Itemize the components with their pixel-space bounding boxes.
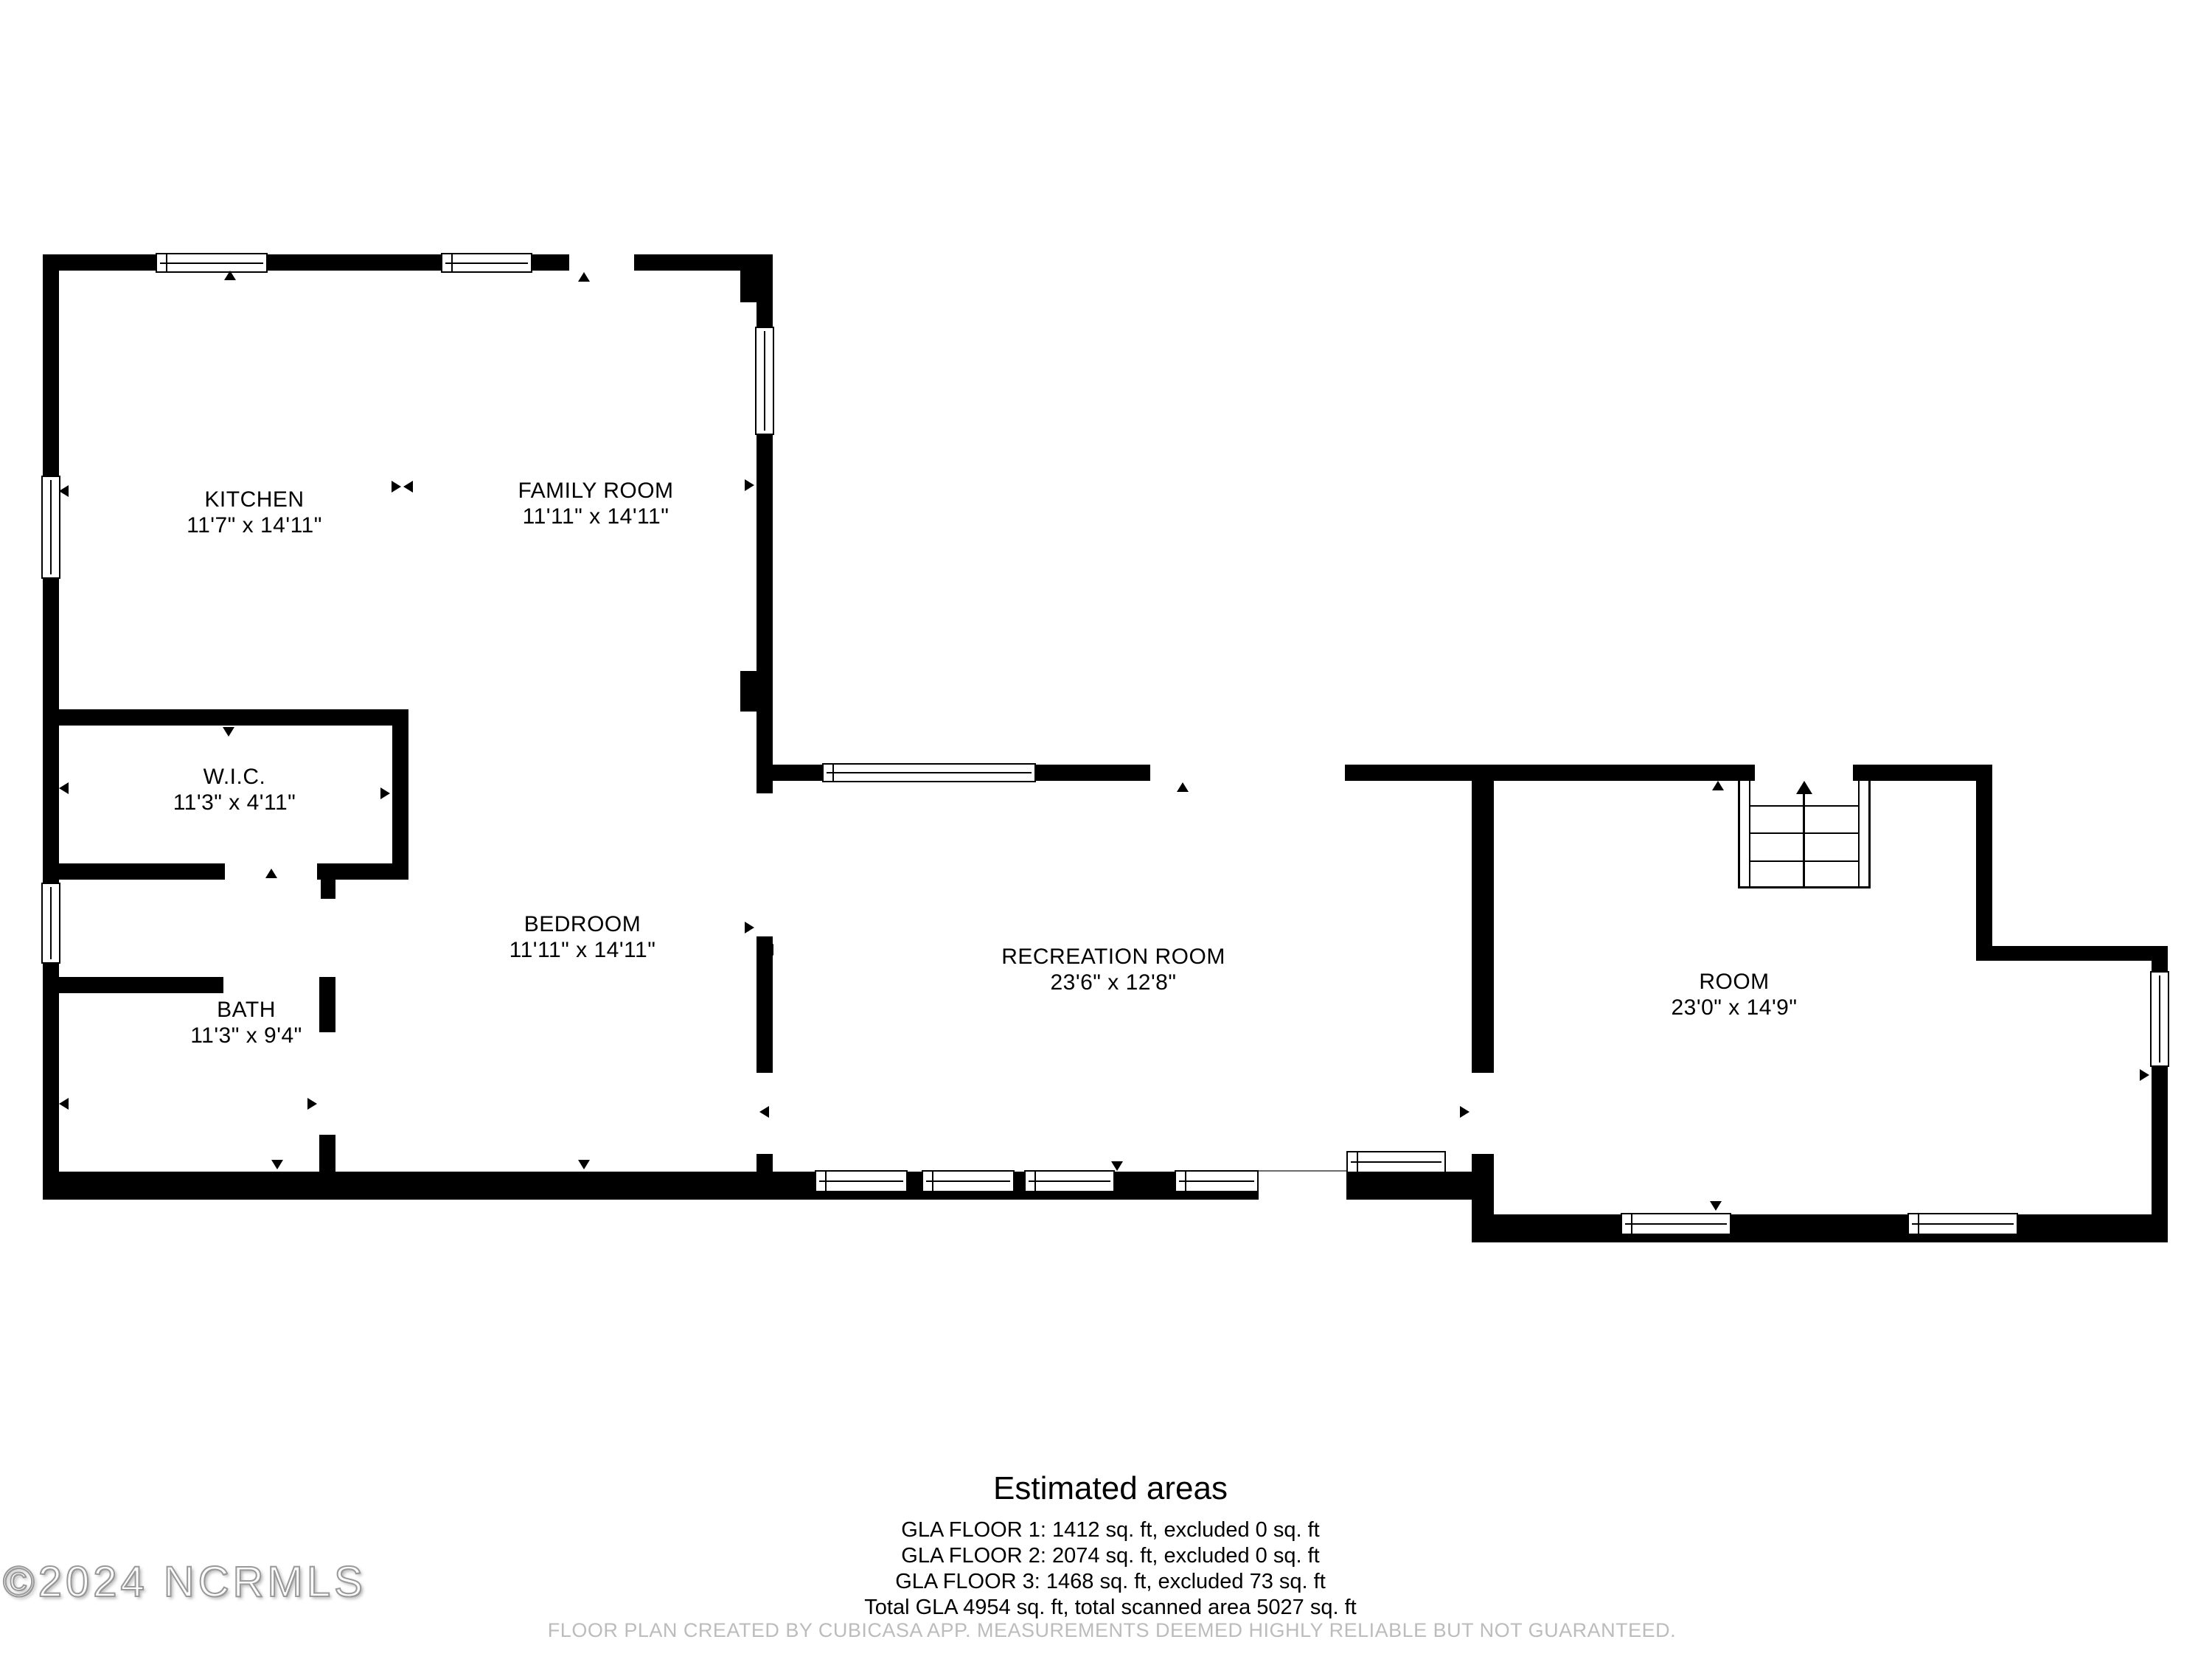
ncrmls-watermark: ©2024 NCRMLS [3,1557,366,1607]
room-label-recreation-room: RECREATION ROOM 23'6" x 12'8" [1001,944,1225,995]
wall-notch-family [740,671,773,712]
staircase [1738,781,1871,888]
estimated-areas-title: Estimated areas [864,1470,1356,1507]
door-opening-rec-room [1472,1073,1494,1154]
door-direction-marker [380,787,390,799]
wall-left-exterior [43,254,59,1200]
estimated-areas-block: Estimated areas GLA FLOOR 1: 1412 sq. ft… [864,1470,1356,1621]
gla-total: Total GLA 4954 sq. ft, total scanned are… [864,1595,1356,1621]
door-direction-marker [578,272,590,282]
door-direction-marker [745,922,754,933]
room-name: ROOM [1671,969,1797,995]
door-direction-marker [745,479,754,491]
door-direction-marker [223,727,234,737]
window-rec-bottom-5 [1346,1151,1446,1173]
room-label-bath: BATH 11'3" x 9'4" [190,997,302,1048]
room-name: KITCHEN [187,487,322,512]
room-dims: 11'3" x 4'11" [173,790,296,815]
gla-floor-3: GLA FLOOR 3: 1468 sq. ft, excluded 73 sq… [864,1569,1356,1595]
door-direction-marker [224,271,236,280]
wall-corner-block-family [740,254,773,302]
door-direction-marker [59,782,69,794]
stair-rail-right [1858,781,1860,886]
window-family-top [441,253,532,273]
door-direction-marker [764,944,773,956]
window-family-right [755,327,774,435]
door-direction-marker [1177,782,1189,792]
room-label-wic: W.I.C. 11'3" x 4'11" [173,764,296,815]
door-opening-rec-top [1150,765,1345,781]
wall-wic-top [43,709,408,726]
floor-plan: KITCHEN 11'7" x 14'11" FAMILY ROOM 11'11… [0,0,2212,1659]
wall-room-step [1976,946,2168,961]
window-kitchen-left [41,476,60,579]
room-name: W.I.C. [173,764,296,790]
room-name: FAMILY ROOM [518,478,673,504]
door-opening-top-wall [569,254,634,271]
room-dims: 11'11" x 14'11" [509,937,656,963]
room-name: BEDROOM [509,911,656,937]
window-hall-left [41,883,60,964]
gla-floor-2: GLA FLOOR 2: 2074 sq. ft, excluded 0 sq.… [864,1543,1356,1569]
wall-hall-stub [321,880,335,899]
window-room-bottom-1 [1621,1213,1731,1235]
door-direction-marker [403,481,413,493]
door-opening-bath [223,977,319,993]
gla-floor-1: GLA FLOOR 1: 1412 sq. ft, excluded 0 sq.… [864,1517,1356,1543]
wall-top-left-building [43,254,773,271]
room-dims: 11'11" x 14'11" [518,504,673,529]
room-name: RECREATION ROOM [1001,944,1225,970]
room-name: BATH [190,997,302,1023]
stairs-up-arrow-shaft [1803,793,1805,886]
room-dims: 11'3" x 9'4" [190,1023,302,1048]
window-room-right [2150,971,2169,1067]
door-direction-marker [392,481,401,493]
room-label-kitchen: KITCHEN 11'7" x 14'11" [187,487,322,538]
door-direction-marker [1460,1106,1470,1118]
door-opening-rec-bottom [1259,1172,1346,1200]
stairs-up-arrow-icon [1796,781,1812,794]
window-rec-bottom-3 [1024,1170,1115,1192]
room-dims: 11'7" x 14'11" [187,512,322,538]
door-direction-marker [59,1098,69,1110]
window-kitchen-top [156,253,268,273]
door-opening-bath-bedroom [319,1032,335,1135]
room-label-bedroom: BEDROOM 11'11" x 14'11" [509,911,656,963]
door-direction-marker [265,869,277,878]
room-dims: 23'0" x 14'9" [1671,995,1797,1020]
window-rec-top [822,763,1036,782]
door-direction-marker [578,1160,590,1169]
door-direction-marker [271,1160,283,1169]
window-rec-bottom-4 [1175,1170,1259,1192]
door-direction-marker [1712,781,1724,790]
wall-room-bottom [1472,1214,2168,1242]
stairwell-opening [1755,765,1853,781]
door-direction-marker [307,1098,317,1110]
door-direction-marker [59,485,69,497]
door-threshold-line [1259,1170,1346,1172]
door-opening-bedroom-rec [757,793,773,936]
door-direction-marker [1710,1201,1722,1211]
wall-room-corner-block [1976,781,1992,961]
room-label-family-room: FAMILY ROOM 11'11" x 14'11" [518,478,673,529]
disclaimer-text: FLOOR PLAN CREATED BY CUBICASA APP. MEAS… [548,1619,1676,1642]
window-room-bottom-2 [1907,1213,2018,1235]
window-rec-bottom-2 [922,1170,1015,1192]
wall-wic-right [392,709,408,880]
room-dims: 23'6" x 12'8" [1001,970,1225,995]
door-direction-marker [1111,1161,1123,1171]
window-rec-bottom-1 [815,1170,908,1192]
wall-room-left [1472,781,1494,1242]
door-direction-marker [2140,1069,2149,1081]
room-label-room: ROOM 23'0" x 14'9" [1671,969,1797,1020]
door-direction-marker [759,1106,769,1118]
